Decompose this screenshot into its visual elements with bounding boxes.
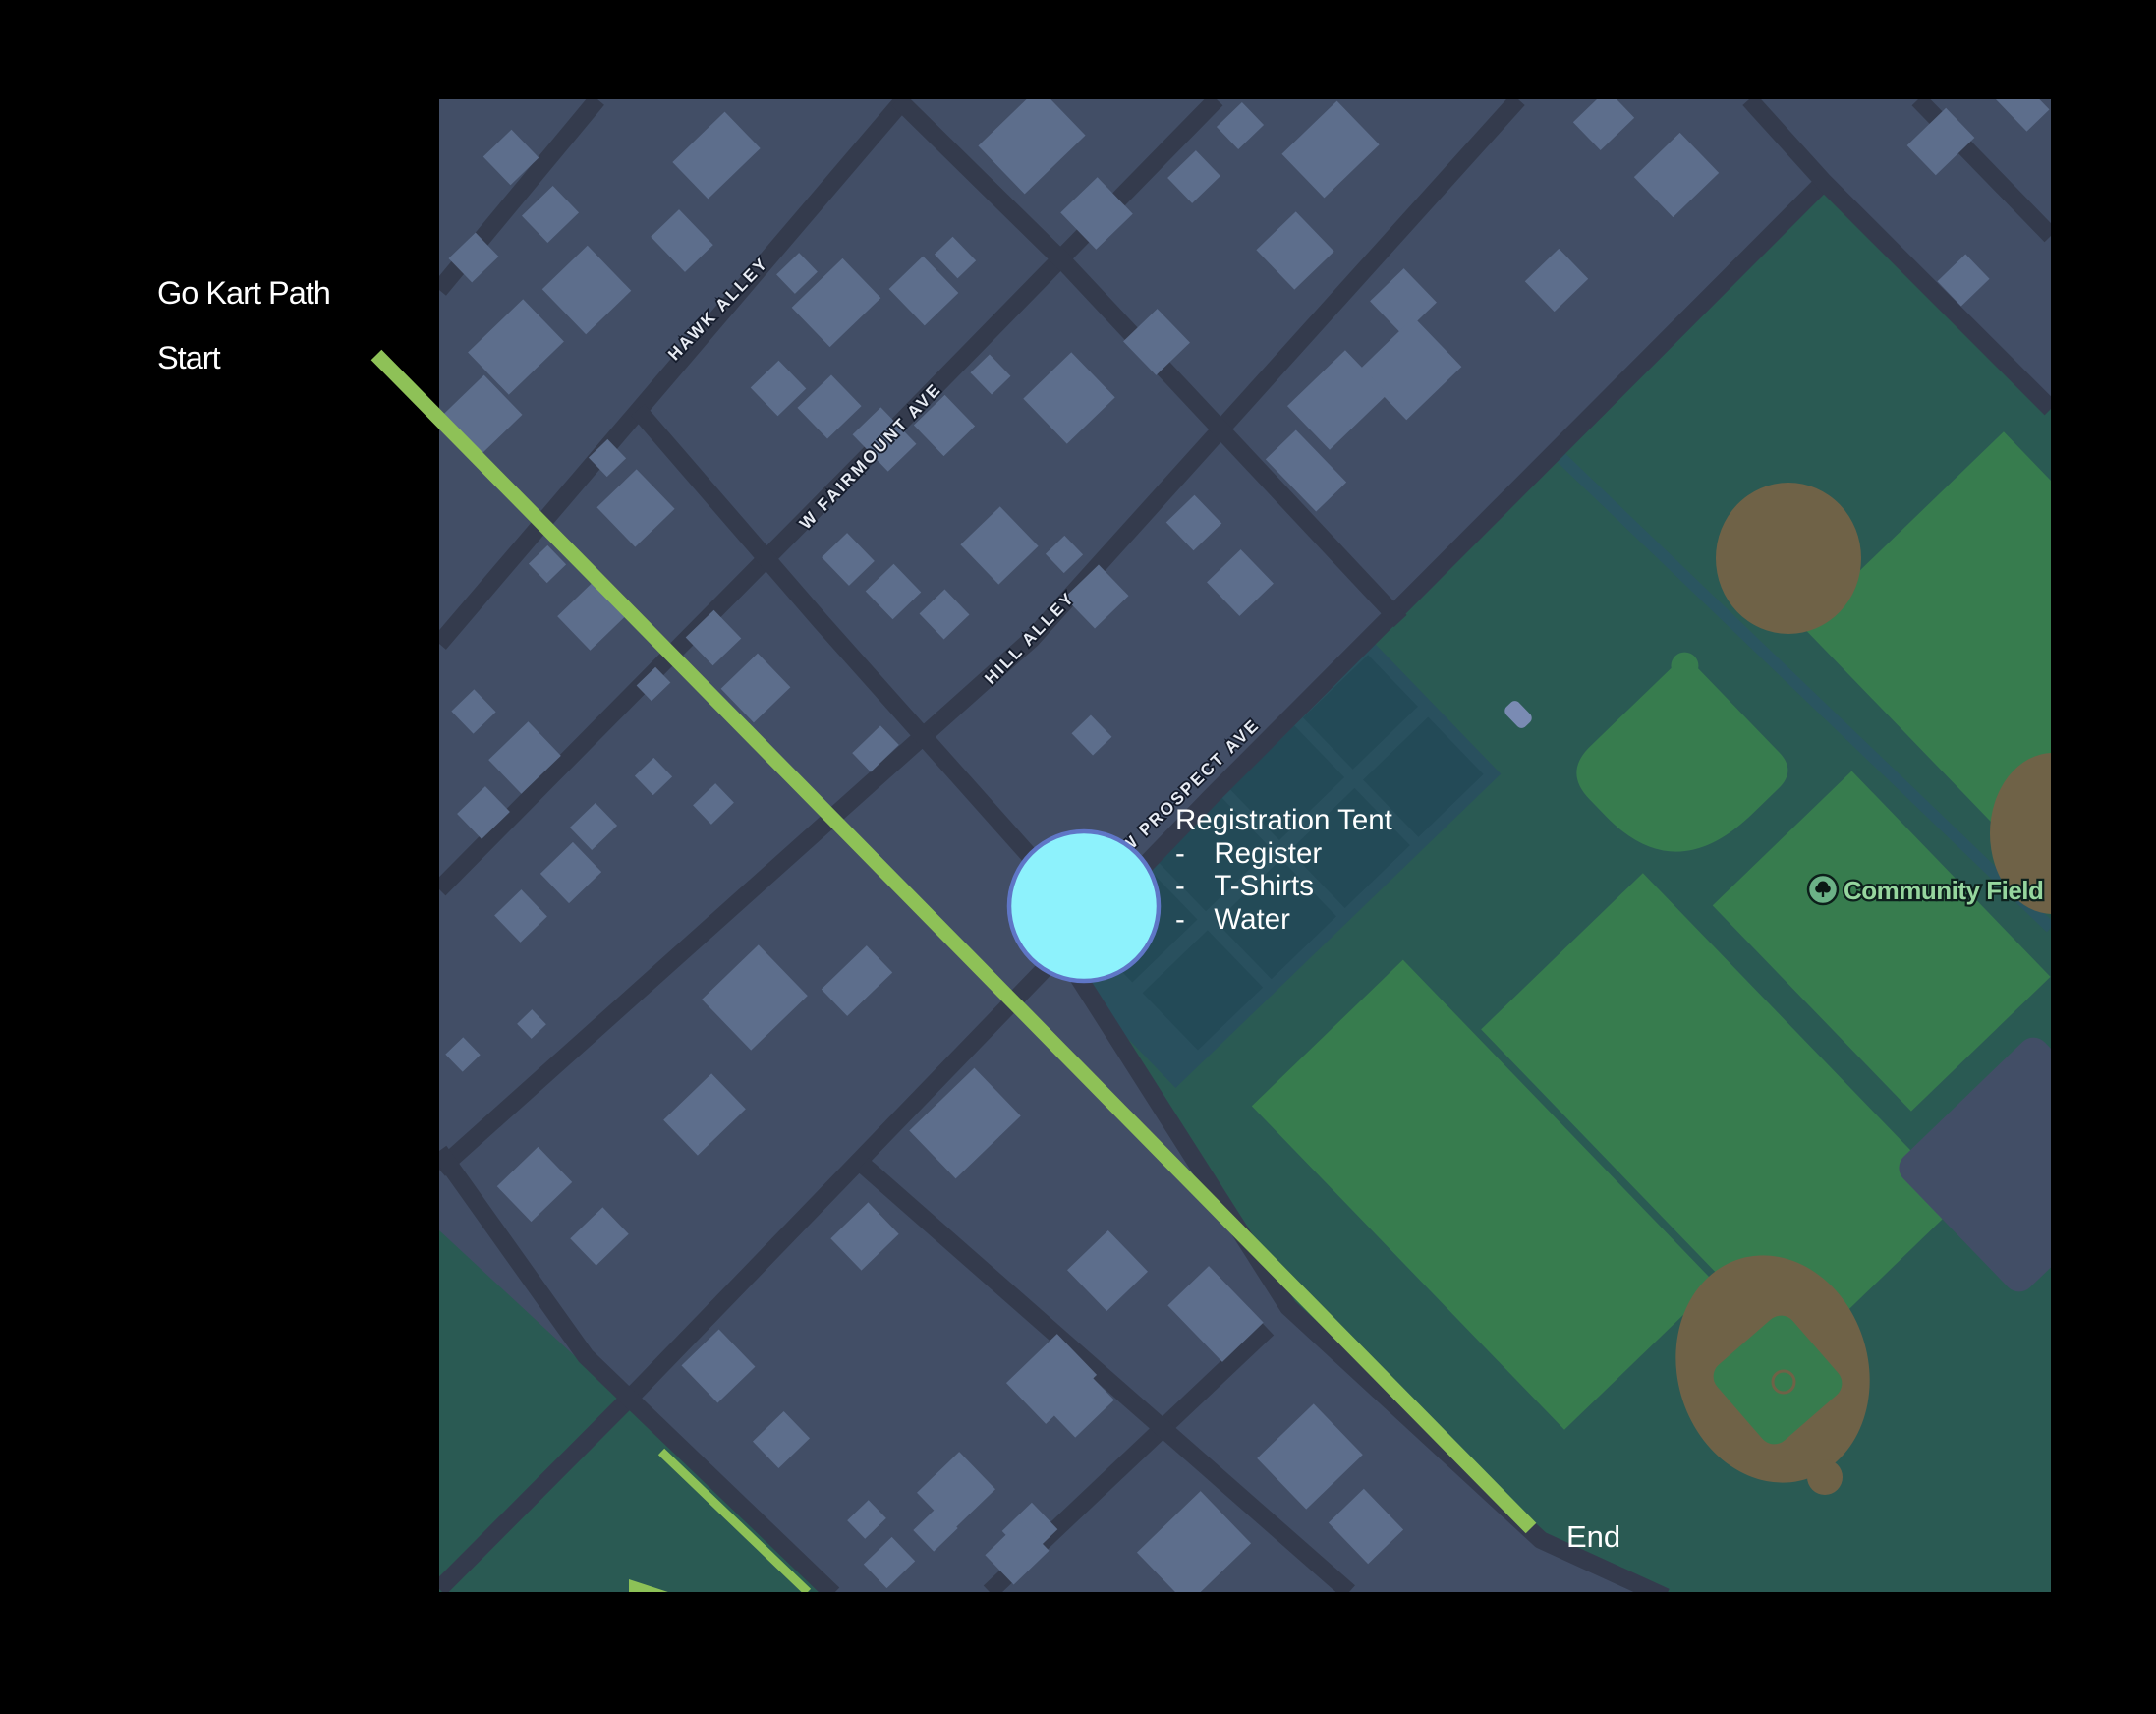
svg-text:Community Field: Community Field	[1844, 876, 2043, 905]
